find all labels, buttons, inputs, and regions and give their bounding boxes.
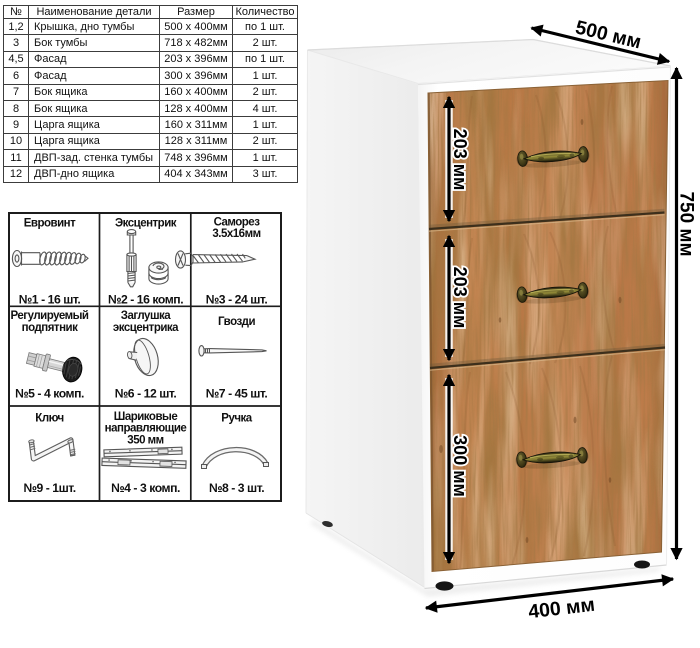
svg-text:750 мм: 750 мм bbox=[676, 191, 697, 256]
svg-text:Саморез: Саморез bbox=[214, 217, 261, 229]
svg-text:203 мм: 203 мм bbox=[450, 267, 470, 329]
svg-text:Шариковые: Шариковые bbox=[114, 411, 178, 423]
svg-text:№6 - 12 шт.: №6 - 12 шт. bbox=[115, 387, 177, 401]
svg-text:подпятник: подпятник bbox=[22, 322, 78, 334]
svg-text:350 мм: 350 мм bbox=[127, 435, 163, 447]
svg-text:эксцентрика: эксцентрика bbox=[113, 322, 179, 334]
svg-text:№7 - 45 шт.: №7 - 45 шт. bbox=[206, 387, 268, 401]
svg-text:№5 - 4 комп.: №5 - 4 комп. bbox=[15, 387, 84, 401]
svg-text:Ручка: Ручка bbox=[221, 412, 252, 424]
svg-text:Гвозди: Гвозди bbox=[218, 316, 256, 328]
svg-text:№9 - 1шт.: №9 - 1шт. bbox=[23, 481, 75, 495]
svg-text:Евровинт: Евровинт bbox=[24, 218, 76, 230]
svg-text:№4 - 3 комп.: №4 - 3 комп. bbox=[111, 481, 180, 495]
svg-text:Регулируемый: Регулируемый bbox=[11, 310, 89, 322]
svg-text:300 мм: 300 мм bbox=[450, 435, 470, 497]
svg-text:№2 - 16 комп.: №2 - 16 комп. bbox=[108, 292, 183, 306]
svg-text:400 мм: 400 мм bbox=[527, 594, 596, 623]
svg-text:203 мм: 203 мм bbox=[450, 129, 470, 191]
svg-text:3.5х16мм: 3.5х16мм bbox=[212, 228, 260, 240]
svg-text:№1 - 16 шт.: №1 - 16 шт. bbox=[19, 292, 81, 306]
svg-text:Заглушка: Заглушка bbox=[121, 310, 171, 322]
svg-text:Эксцентрик: Эксцентрик bbox=[115, 218, 177, 230]
svg-text:№8 - 3 шт.: №8 - 3 шт. bbox=[209, 481, 264, 495]
svg-text:Ключ: Ключ bbox=[35, 412, 63, 424]
svg-text:направляющие: направляющие bbox=[105, 423, 187, 435]
svg-text:№3 - 24 шт.: №3 - 24 шт. bbox=[206, 292, 268, 306]
